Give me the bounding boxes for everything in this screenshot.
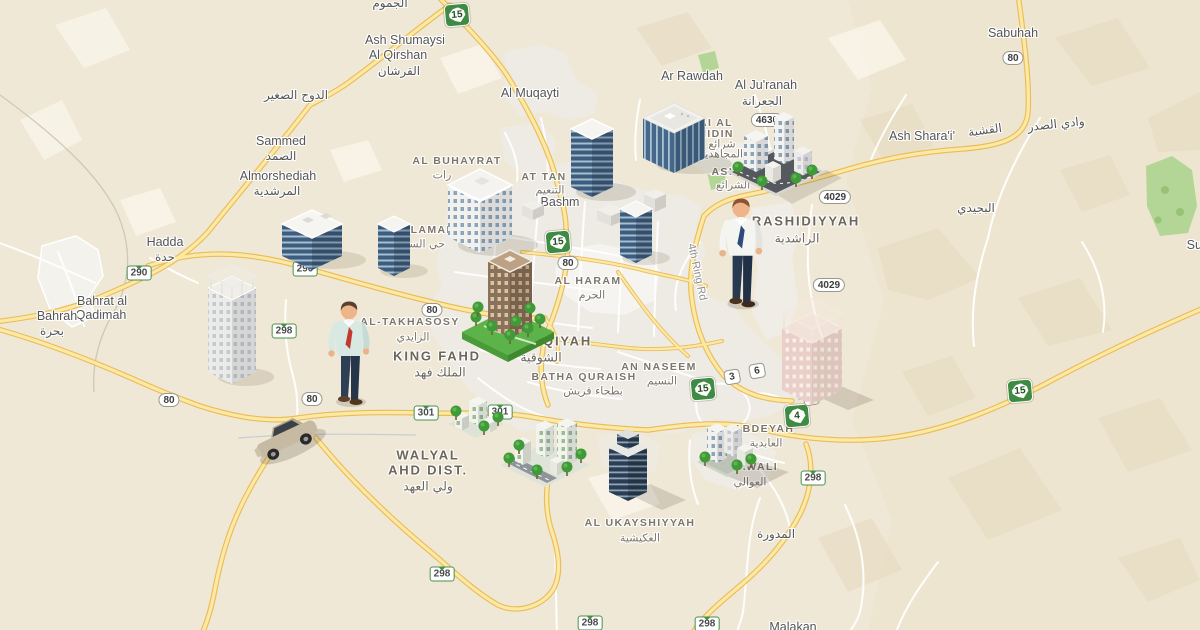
map-base-layer — [0, 0, 1200, 630]
map-canvas[interactable]: الجمومAsh ShumaysiAl QirshanالقرشانAl Mu… — [0, 0, 1200, 630]
